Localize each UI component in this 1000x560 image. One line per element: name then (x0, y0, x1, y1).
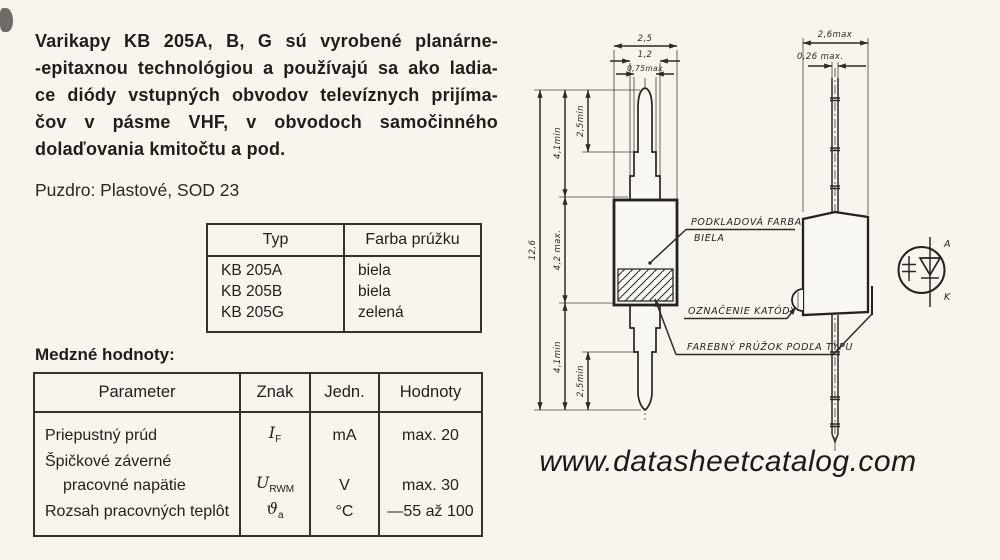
value-cell: max. 20 (379, 412, 481, 446)
spacer-cell (35, 522, 240, 535)
front-view-package: 2,6max 0,26 max. (792, 30, 872, 452)
table-row: KB 205B biela (208, 283, 480, 304)
scan-artifact (0, 8, 13, 32)
table-row: Priepustný prúd IF mA max. 20 (35, 412, 481, 446)
value-cell: max. 30 (379, 472, 481, 496)
value-cell: —55 až 100 (379, 496, 481, 522)
parameter-cell: Rozsah pracovných teplôt (35, 496, 240, 522)
side-view-package (614, 78, 677, 420)
symbol-sub: RWM (269, 484, 294, 495)
symbol-cell: ϑa (240, 496, 310, 522)
dim-total-length: 12,6 (528, 240, 538, 261)
unit-cell: °C (310, 496, 379, 522)
parameter-cell: pracovné napätie (35, 472, 240, 496)
spacer-cell (240, 522, 310, 535)
label-base-color-line1: PODKLADOVÁ FARBA (691, 216, 802, 228)
limits-heading: Medzné hodnoty: (35, 345, 175, 365)
label-base-color-line2: BIELA (694, 233, 725, 244)
datasheet-page: Varikapy KB 205A, B, G sú vyrobené planá… (0, 0, 1000, 560)
symbol-main: ϑ (267, 499, 278, 518)
limits-header-jedn: Jedn. (310, 374, 379, 412)
unit-cell: mA (310, 412, 379, 446)
type-table-header-typ: Typ (208, 225, 344, 256)
table-row (35, 522, 481, 535)
varicap-symbol: A K (899, 237, 952, 307)
side-view-top-dimensions: 2,5 1,2 0,75max (610, 34, 680, 74)
spacer-cell (208, 325, 344, 331)
type-cell: KB 205G (208, 304, 344, 325)
spacer-cell (344, 325, 480, 331)
top-pin (630, 88, 660, 200)
dim-front-body-width: 2,6max (818, 30, 853, 40)
watermark-url: www.datasheetcatalog.com (539, 445, 916, 478)
symbol-cell: URWM (240, 472, 310, 496)
front-body (803, 212, 868, 315)
unit-cell: V (310, 472, 379, 496)
limits-header-hodnoty: Hodnoty (379, 374, 481, 412)
table-row: pracovné napätie URWM V max. 30 (35, 472, 481, 496)
intro-line: ce diódy vstupných obvodov televíznych p… (35, 82, 498, 109)
intro-line: dolaďovania kmitočtu a pod. (35, 136, 498, 163)
color-cell: biela (344, 262, 480, 283)
side-view-left-dimensions: 12,6 4,1min 4,2 max. 4,1min 2,5min 2,5mi… (528, 90, 588, 410)
table-row: Rozsah pracovných teplôt ϑa °C —55 až 10… (35, 496, 481, 522)
dim-tip-bottom: 2,5min (576, 365, 586, 397)
symbol-sub: a (278, 510, 284, 521)
type-cell: KB 205A (208, 262, 344, 283)
dim-tip-top: 2,5min (576, 105, 586, 137)
unit-cell (310, 446, 379, 472)
package-drawings: 2,5 1,2 0,75max 12,6 4,1min 4,2 max. 4,1… (510, 0, 1000, 560)
symbol-cell: IF (240, 412, 310, 446)
symbol-sub: F (275, 434, 281, 445)
type-table-header-farba: Farba prúžku (344, 225, 480, 256)
dim-body-length: 4,2 max. (553, 230, 563, 271)
dim-body-width: 2,5 (638, 34, 653, 44)
dim-front-lead-width: 0,26 max. (797, 52, 843, 62)
anode-label: A (943, 239, 951, 250)
bottom-pin (630, 305, 660, 410)
symbol-main: U (256, 473, 269, 492)
dim-lead-top: 4,1min (553, 127, 563, 159)
table-row: KB 205A biela (208, 262, 480, 283)
dim-lead-bottom: 4,1min (553, 341, 563, 373)
color-stripe-band (618, 269, 673, 301)
limits-table: Parameter Znak Jedn. Hodnoty Priepustný … (33, 372, 483, 537)
dim-pin-width: 0,75max (627, 64, 663, 73)
spacer-cell (310, 522, 379, 535)
spacer-cell (379, 522, 481, 535)
leader-dot (648, 261, 651, 264)
table-row: KB 205G zelená (208, 304, 480, 325)
type-cell: KB 205B (208, 283, 344, 304)
parameter-cell: Priepustný prúd (35, 412, 240, 446)
color-cell: biela (344, 283, 480, 304)
color-cell: zelená (344, 304, 480, 325)
intro-line: Varikapy KB 205A, B, G sú vyrobené planá… (35, 28, 498, 55)
limits-header-parameter: Parameter (35, 374, 240, 412)
intro-paragraph: Varikapy KB 205A, B, G sú vyrobené planá… (35, 28, 498, 163)
dim-collar-width: 1,2 (638, 50, 653, 60)
cathode-label: K (944, 292, 951, 303)
type-color-table: Typ Farba prúžku KB 205A biela KB 205B b… (206, 223, 482, 333)
intro-line: -epitaxnou technológiou a používajú sa a… (35, 55, 498, 82)
symbol-cell (240, 446, 310, 472)
parameter-cell: Špičkové záverné (35, 446, 240, 472)
intro-line: čov v pásme VHF, v obvodoch samočinného (35, 109, 498, 136)
value-cell (379, 446, 481, 472)
label-cathode-marking: OZNAČENIE KATÓDY (688, 305, 797, 317)
package-line: Puzdro: Plastové, SOD 23 (35, 180, 239, 201)
label-color-stripe: FAREBNÝ PRÚŽOK PODĽA TYPU (687, 341, 853, 353)
table-row: Špičkové záverné (35, 446, 481, 472)
limits-header-znak: Znak (240, 374, 310, 412)
